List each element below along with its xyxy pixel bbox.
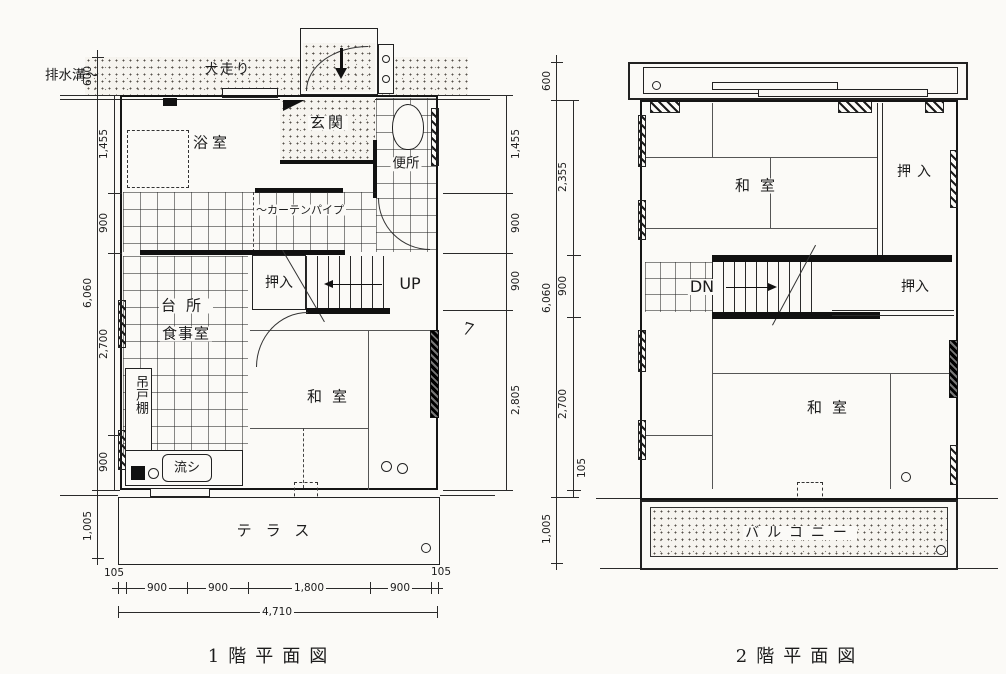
dim-600: 600 [82,66,94,86]
dim-900: 900 [98,452,110,472]
step-stone [150,488,210,497]
wall-bar [140,250,345,255]
entrance-step [280,160,376,164]
curtain-line [253,192,254,252]
sink-label: 流シ [174,462,200,475]
washitsu-2f-lower-label: 和室 [805,401,859,416]
entry-arrow-shaft [340,48,343,70]
window-pocket [950,150,958,208]
terrace-label: テラス [237,524,324,539]
washitsu-2f-upper-label: 和室 [733,179,787,194]
washitsu-1f-label: 和室 [305,390,359,405]
entrance-label: 玄関 [308,116,348,131]
tatami-line [303,428,304,488]
dim-900: 900 [388,582,412,594]
dim-1455: 1,455 [510,129,522,159]
outlet-symbol-icon [381,461,392,472]
hanging-cupboard-label: 吊戸棚 [131,375,150,414]
stairs-up-label: UP [399,276,420,292]
drain-symbol-icon [652,81,661,90]
dim-6060: 6,060 [82,278,94,308]
dim-600: 600 [541,71,553,91]
closet-1f-label: 押入 [265,276,293,290]
dim-2700: 2,700 [557,389,569,419]
balcony-label: バルコニー [743,526,857,540]
closet-2f-mid-label: 押入 [899,280,931,294]
kitchen-label: 台所 [159,299,213,314]
dim-1005: 1,005 [541,514,553,544]
window-pocket [638,420,646,460]
dim-105: 105 [576,458,588,478]
washroom-floor [123,192,376,252]
dim-105: 105 [431,566,451,578]
sliding-window [758,89,928,97]
handwritten-mark: 7 [460,319,476,341]
post-hole-icon [382,55,390,63]
curtain-pipe-label: 〜カーテンパイプ [254,205,346,216]
post-hole-icon [382,75,390,83]
dim-1005: 1,005 [82,511,94,541]
dim-4710: 4,710 [260,606,294,618]
entrance-corner-mark [283,100,305,111]
dog-run-label: 犬走り [205,63,252,77]
toilet-label: 便所 [391,157,422,171]
window-pocket [430,330,439,418]
gate-post [378,44,394,94]
dim-1455: 1,455 [98,129,110,159]
window-pocket [949,340,958,398]
outlet-symbol-icon [148,468,159,479]
stair-wall [306,308,390,314]
window-pocket [638,200,646,240]
dim-2700: 2,700 [98,329,110,359]
toilet-bowl [392,104,424,150]
window-pocket [431,108,439,166]
window-pocket [638,115,646,167]
window-pocket [950,445,958,485]
window-pocket [118,430,126,470]
dining-label: 食事室 [160,327,212,342]
floor2-caption: 2階平面図 [736,642,864,668]
dim-900: 900 [510,213,522,233]
dim-2355: 2,355 [557,162,569,192]
stove-symbol [131,466,145,480]
stairs-up [306,256,390,310]
bath-label: 浴室 [193,136,231,151]
dim-900: 900 [510,271,522,291]
dim-2805: 2,805 [510,385,522,415]
dim-6060: 6,060 [541,283,553,313]
dim-1800: 1,800 [292,582,326,594]
stair-direction-arrow [324,280,333,288]
bathtub [127,130,189,188]
hall-floor [376,198,436,252]
drain-symbol-icon [936,545,946,555]
stair-wall [712,255,952,262]
window-pocket [118,300,126,348]
floor1-caption: 1階平面図 [208,642,336,668]
closet-2f-upper-label: 押入 [895,165,939,179]
window-pocket [638,330,646,372]
stairs-down-label: DN [688,279,716,295]
outlet-symbol-icon [397,463,408,474]
dim-105: 105 [104,567,124,579]
entry-arrow-icon [335,68,347,79]
stair-direction-arrow [768,283,777,291]
dim-900: 900 [98,213,110,233]
floorplan-sheet: 排水溝〜 犬走り 浴室 玄関 便所 〜カーテンパイプ 押入 UP 台所 食事室 … [0,0,1006,674]
dim-900: 900 [206,582,230,594]
hanging-cupboard: 吊戸棚 [125,368,152,452]
drain-symbol-icon [421,543,431,553]
dim-900: 900 [557,276,569,296]
wall-opening-mark [797,482,823,502]
dim-900: 900 [145,582,169,594]
outlet-symbol-icon [901,472,911,482]
